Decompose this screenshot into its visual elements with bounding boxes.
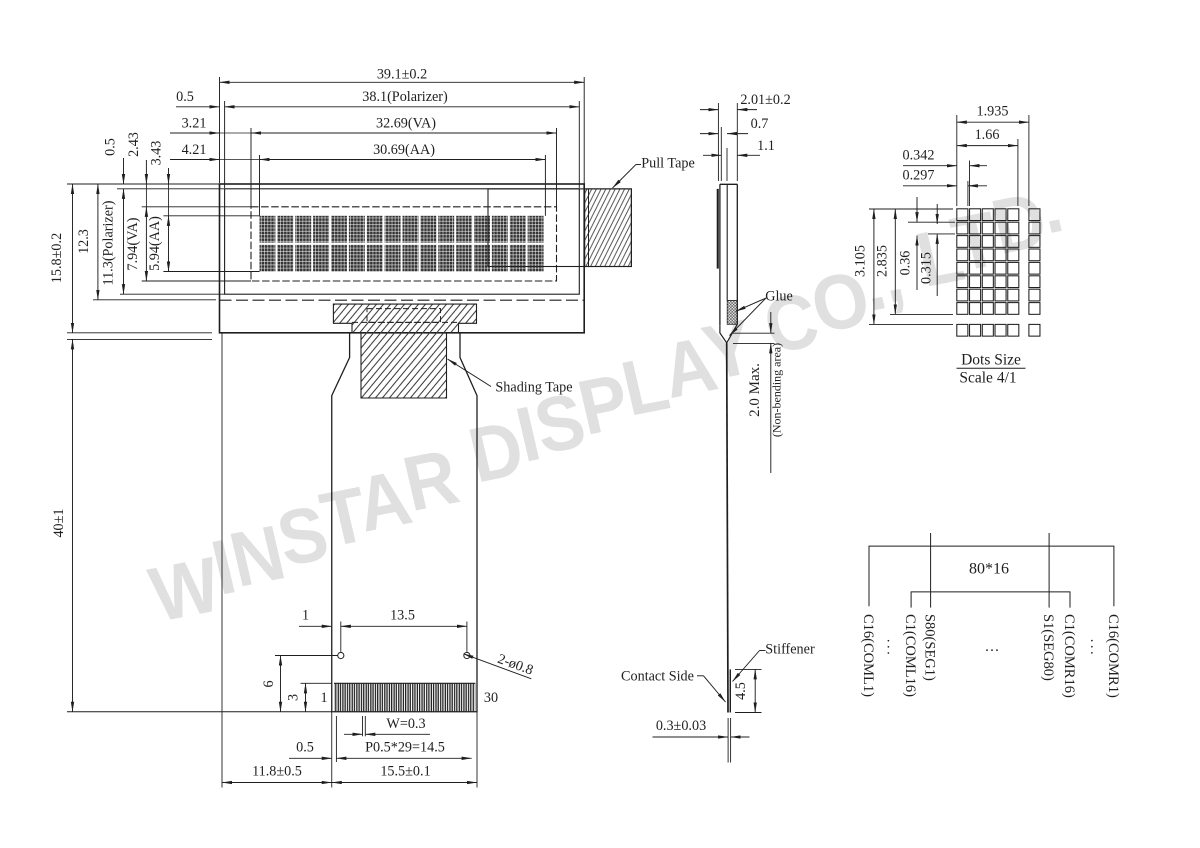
- svg-text:Scale 4/1: Scale 4/1: [959, 370, 1016, 387]
- svg-text:...: ...: [1087, 639, 1103, 657]
- svg-text:40±1: 40±1: [51, 508, 67, 537]
- svg-text:C1(COML16): C1(COML16): [902, 614, 918, 697]
- svg-text:S80(SEG1): S80(SEG1): [922, 614, 938, 681]
- svg-text:6: 6: [261, 680, 277, 687]
- svg-text:2.0 Max.: 2.0 Max.: [747, 363, 763, 417]
- svg-text:0.3±0.03: 0.3±0.03: [656, 718, 706, 734]
- svg-text:0.7: 0.7: [751, 116, 769, 132]
- svg-text:11.8±0.5: 11.8±0.5: [252, 764, 302, 780]
- svg-text:0.5: 0.5: [296, 740, 314, 756]
- svg-text:15.5±0.1: 15.5±0.1: [380, 764, 430, 780]
- svg-text:···: ···: [985, 643, 1000, 659]
- svg-text:1.935: 1.935: [977, 104, 1009, 120]
- svg-text:S1(SEG80): S1(SEG80): [1040, 614, 1056, 681]
- svg-text:39.1±0.2: 39.1±0.2: [377, 67, 427, 83]
- svg-text:0.36: 0.36: [898, 251, 914, 276]
- svg-text:(Non-bending area): (Non-bending area): [770, 343, 784, 437]
- svg-text:3.43: 3.43: [149, 141, 165, 166]
- svg-text:7.94(VA): 7.94(VA): [125, 217, 141, 270]
- svg-text:12.3: 12.3: [76, 229, 92, 254]
- svg-text:4.5: 4.5: [733, 682, 749, 700]
- svg-text:32.69(VA): 32.69(VA): [376, 115, 436, 131]
- svg-text:2.835: 2.835: [874, 245, 890, 277]
- svg-text:0.5: 0.5: [176, 89, 194, 105]
- svg-text:0.5: 0.5: [103, 138, 119, 156]
- svg-text:1: 1: [320, 690, 327, 706]
- svg-text:4.21: 4.21: [182, 142, 207, 158]
- svg-text:Shading Tape: Shading Tape: [495, 380, 572, 396]
- svg-text:0.342: 0.342: [903, 148, 935, 164]
- svg-text:5.94(AA): 5.94(AA): [147, 216, 163, 271]
- svg-text:3: 3: [286, 694, 302, 701]
- svg-text:C16(COML1): C16(COML1): [860, 614, 876, 697]
- svg-text:W=0.3: W=0.3: [386, 716, 425, 732]
- svg-text:1: 1: [302, 608, 309, 624]
- svg-text:13.5: 13.5: [390, 608, 415, 624]
- svg-text:2.43: 2.43: [126, 132, 142, 157]
- svg-text:3.105: 3.105: [853, 245, 869, 277]
- svg-text:Glue: Glue: [765, 289, 793, 305]
- svg-text:...: ...: [884, 639, 900, 657]
- svg-text:1.66: 1.66: [975, 127, 1000, 143]
- svg-text:0.297: 0.297: [903, 168, 935, 184]
- svg-text:3.21: 3.21: [182, 115, 207, 131]
- svg-text:Pull Tape: Pull Tape: [641, 156, 695, 172]
- svg-text:Stiffener: Stiffener: [765, 642, 815, 658]
- svg-text:C16(COMR1): C16(COMR1): [1105, 614, 1121, 698]
- svg-text:2.01±0.2: 2.01±0.2: [740, 92, 790, 108]
- svg-text:38.1(Polarizer): 38.1(Polarizer): [362, 89, 448, 105]
- svg-text:30: 30: [484, 690, 498, 706]
- svg-text:C1(COMR16): C1(COMR16): [1061, 614, 1077, 698]
- svg-text:80*16: 80*16: [969, 561, 1009, 578]
- svg-text:Contact Side: Contact Side: [621, 669, 694, 685]
- svg-text:0.315: 0.315: [919, 252, 935, 284]
- svg-text:11.3(Polarizer): 11.3(Polarizer): [100, 200, 116, 285]
- svg-text:1.1: 1.1: [757, 138, 775, 154]
- svg-text:Dots Size: Dots Size: [961, 352, 1021, 369]
- svg-text:P0.5*29=14.5: P0.5*29=14.5: [365, 740, 445, 756]
- svg-text:30.69(AA): 30.69(AA): [373, 142, 435, 158]
- svg-text:15.8±0.2: 15.8±0.2: [49, 233, 65, 283]
